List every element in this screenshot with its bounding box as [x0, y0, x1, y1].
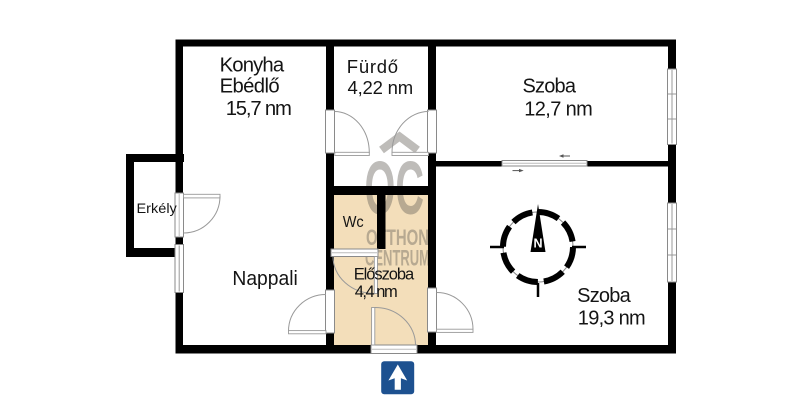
svg-text:Wc: Wc [343, 214, 364, 231]
svg-text:N: N [533, 237, 542, 251]
svg-text:12,7 nm: 12,7 nm [524, 98, 593, 120]
svg-text:Előszoba: Előszoba [354, 266, 415, 284]
svg-text:Ebédlő: Ebédlő [220, 75, 280, 97]
svg-text:Konyha: Konyha [220, 55, 285, 77]
svg-text:4,22 nm: 4,22 nm [348, 77, 414, 98]
svg-text:Szoba: Szoba [577, 285, 632, 307]
svg-text:Nappali: Nappali [232, 268, 297, 290]
svg-text:15,7 nm: 15,7 nm [226, 98, 292, 120]
svg-text:Fürdő: Fürdő [347, 56, 398, 77]
svg-text:4,4 nm: 4,4 nm [355, 283, 398, 301]
svg-text:Erkély: Erkély [137, 201, 178, 216]
svg-text:Szoba: Szoba [523, 75, 577, 97]
svg-text:19,3 nm: 19,3 nm [578, 308, 646, 330]
